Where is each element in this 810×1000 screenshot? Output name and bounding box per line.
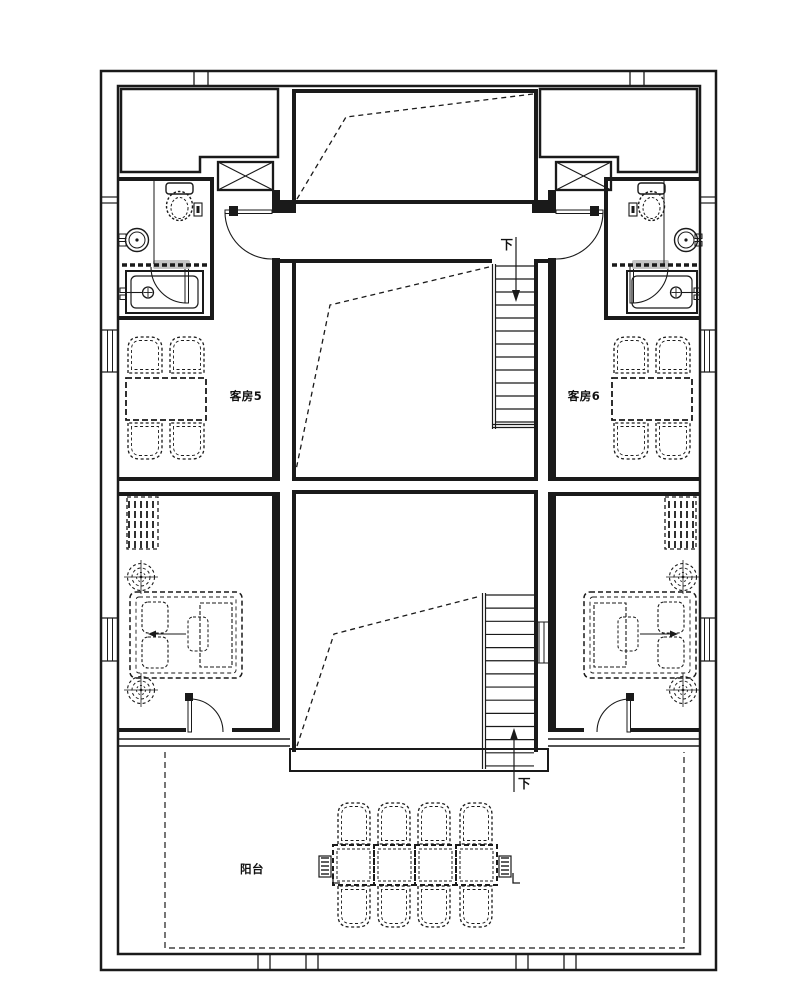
stair-upper: [492, 237, 534, 429]
guest-room-6-furniture: [612, 337, 692, 459]
bathroom-left-fixtures: [119, 181, 209, 313]
guest-room-5-furniture: [126, 337, 206, 459]
floor-plan-drawing: [0, 0, 810, 1000]
room-label-guest-room-5: 客房5: [224, 390, 268, 403]
bedroom-left-furniture: [124, 497, 242, 707]
void-slope-lines: [296, 94, 533, 746]
interior-walls: [118, 89, 700, 771]
balcony-edge: [165, 752, 684, 948]
floor-plan: 客房5 客房6 阳台 下 下: [0, 0, 810, 1000]
stair-upper-down-label: 下: [495, 238, 513, 251]
window-symbols: [102, 330, 716, 663]
stair-lower-down-label: 下: [518, 777, 536, 790]
bedroom-right-furniture: [584, 497, 700, 707]
room-label-balcony: 阳台: [230, 863, 274, 876]
exterior-walls: [101, 71, 716, 970]
room-label-guest-room-6: 客房6: [562, 390, 606, 403]
stair-lower: [483, 593, 535, 792]
balcony-dining-set: [319, 803, 520, 927]
